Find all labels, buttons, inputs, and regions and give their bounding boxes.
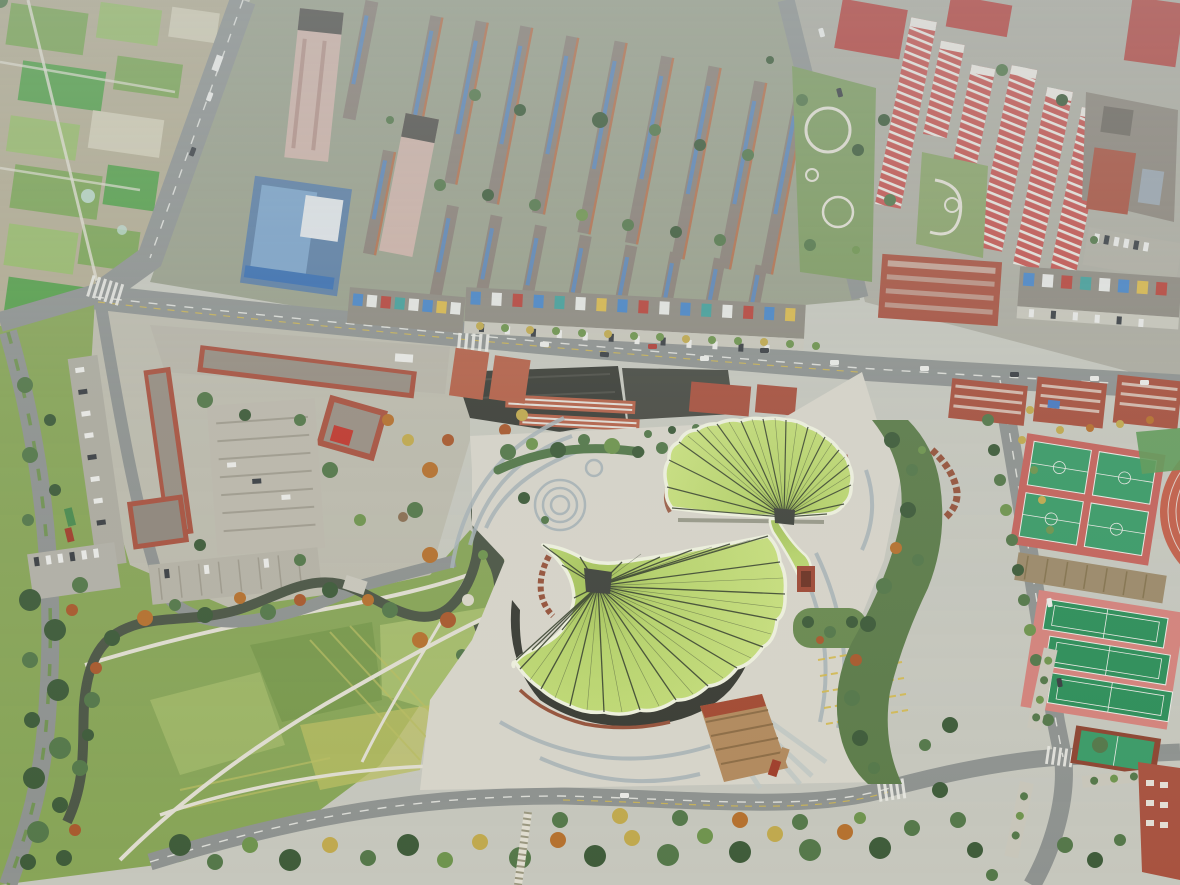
aerial-photo [0, 0, 1180, 885]
aerial-photo-canvas [0, 0, 1180, 885]
atmospheric-haze [0, 0, 1180, 885]
